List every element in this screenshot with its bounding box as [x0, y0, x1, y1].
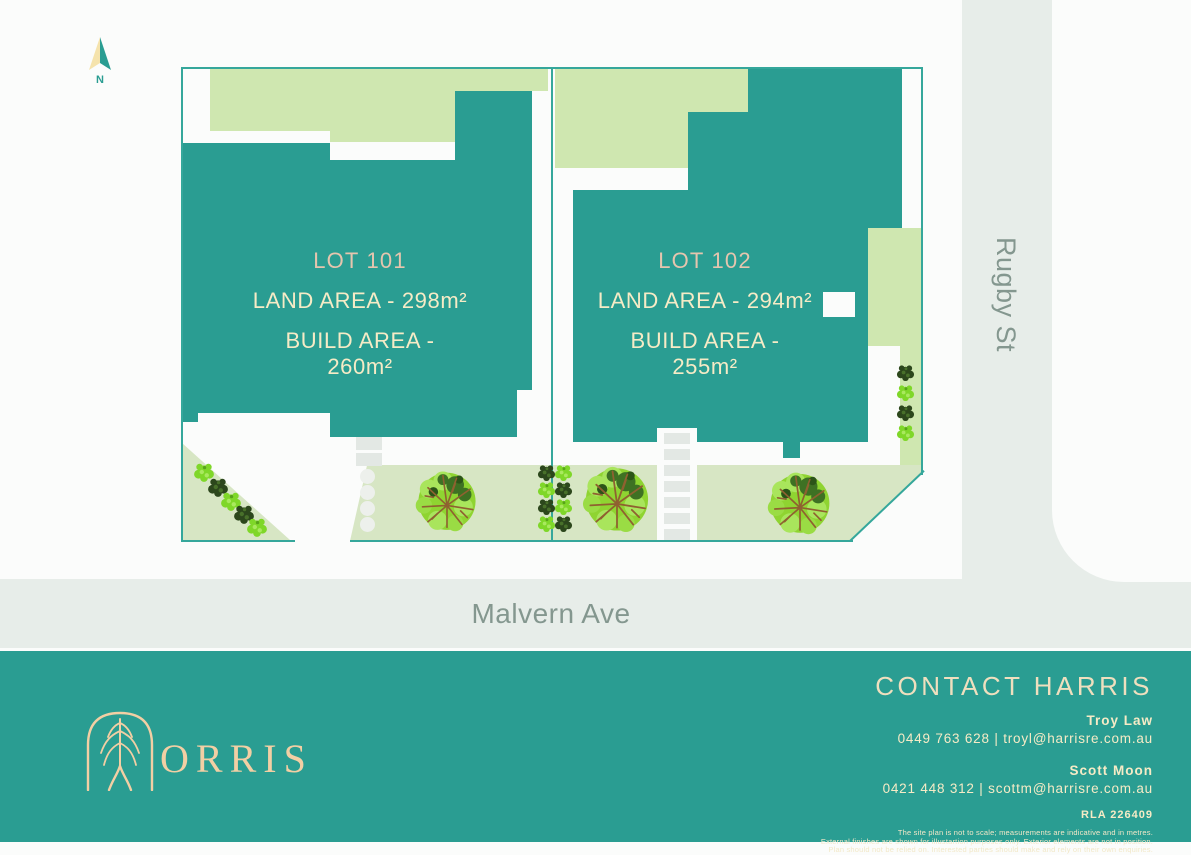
boundary-line-left [181, 67, 183, 542]
boundary-line-bottom-b [350, 540, 853, 542]
bush-icon [896, 383, 915, 402]
disclaimer-line-3: Plan should not be relied on. Interested… [821, 846, 1153, 855]
building-102-tab [783, 442, 800, 458]
street-label-malvern: Malvern Ave [420, 598, 682, 630]
bush-icon [246, 516, 268, 538]
building-102-notch [823, 292, 855, 317]
path-paver [664, 449, 690, 460]
bush-icon [554, 514, 573, 533]
orris-logo-icon [85, 709, 155, 791]
path-paver [664, 513, 690, 524]
building-102-edge [868, 68, 902, 228]
agent-contact: 0449 763 628 | troyl@harrisre.com.au [821, 731, 1153, 746]
path-paver [664, 433, 690, 444]
paving-101-b [356, 453, 382, 466]
paving-101-a [356, 437, 382, 450]
path-paver [664, 529, 690, 540]
bush-icon [896, 363, 915, 382]
garden-102-left [555, 69, 688, 168]
stepping-stone [360, 501, 375, 516]
agent-name: Troy Law [821, 713, 1153, 728]
contact-heading: CONTACT HARRIS [821, 671, 1153, 702]
bush-icon [896, 403, 915, 422]
contact-block: CONTACT HARRIS Troy Law 0449 763 628 | t… [821, 671, 1153, 855]
building-101-edge [517, 91, 532, 390]
agent-contact: 0421 448 312 | scottm@harrisre.com.au [821, 781, 1153, 796]
lot-102-land-area: LAND AREA - 294m² [595, 288, 815, 314]
footer: ORRIS CONTACT HARRIS Troy Law 0449 763 6… [0, 651, 1191, 842]
lot-101-land-area: LAND AREA - 298m² [250, 288, 470, 314]
compass-icon [86, 36, 114, 74]
tree-icon [765, 467, 835, 537]
stepping-stone [360, 485, 375, 500]
boundary-line-right [921, 67, 923, 475]
boundary-line-bottom-a [181, 540, 295, 542]
lot-101-title: LOT 101 [250, 248, 470, 274]
building-101-step [181, 413, 198, 422]
lot-102-build-area: BUILD AREA - 255m² [595, 328, 815, 380]
lot-101-label: LOT 101 LAND AREA - 298m² BUILD AREA - 2… [250, 248, 470, 394]
lot-101-build-area: BUILD AREA - 260m² [250, 328, 470, 380]
garden-102-right-patch [868, 228, 923, 346]
stepping-stone [360, 469, 375, 484]
agent-name: Scott Moon [821, 763, 1153, 778]
tree-icon [580, 461, 654, 535]
path-paver [664, 481, 690, 492]
road-corner-mask [1052, 0, 1191, 582]
street-label-rugby: Rugby St [990, 237, 1021, 352]
tree-icon [413, 466, 481, 534]
stepping-stone [360, 517, 375, 532]
garden-101-left [210, 69, 330, 131]
path-paver [664, 465, 690, 476]
lot-102-title: LOT 102 [595, 248, 815, 274]
garden-101-mid [330, 69, 455, 142]
rla-number: RLA 226409 [821, 809, 1153, 821]
lot-102-label: LOT 102 LAND AREA - 294m² BUILD AREA - 2… [595, 248, 815, 394]
compass-label: N [86, 74, 114, 86]
bush-icon [896, 423, 915, 442]
orris-logo-text: ORRIS [160, 735, 313, 782]
path-paver [664, 497, 690, 508]
site-plan-flyer: { "colors": { "page_bg": "#FBFCFB", "tea… [0, 0, 1191, 842]
